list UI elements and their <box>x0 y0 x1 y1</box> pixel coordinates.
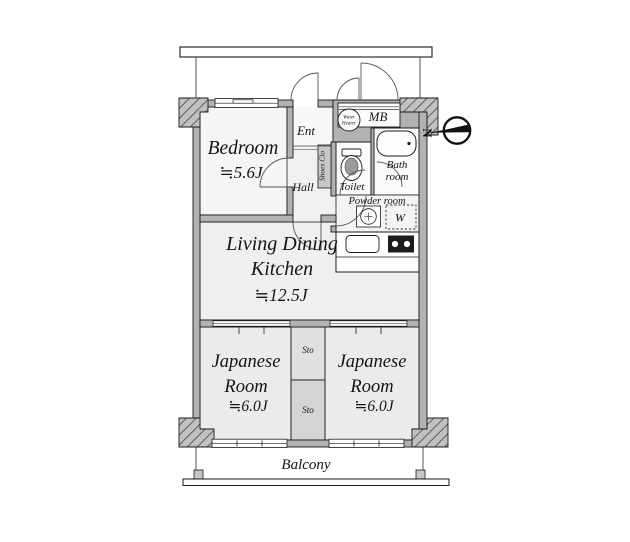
water-heater-label-1: Water <box>343 116 355 121</box>
washer-label: W <box>395 211 406 225</box>
kitchen-counter <box>336 232 419 272</box>
japanese-left-label-2: Room <box>223 377 267 397</box>
japanese-right-size: ≒6.0J <box>354 398 394 415</box>
vanity-sink-icon <box>357 206 381 227</box>
ldk-label-2: Kitchen <box>250 258 313 280</box>
bathroom-label-2: room <box>386 171 409 183</box>
bedroom-label: Bedroom <box>208 138 279 159</box>
wall-bedroom-right-upper <box>287 107 293 158</box>
floorplan-canvas: Bedroom ≒5.6J Ent Hall Shoes Clo Toilet … <box>0 0 630 542</box>
japanese-right-label-2: Room <box>349 377 393 397</box>
meter-box-door-large-arc <box>361 63 398 100</box>
stove-icon <box>388 236 414 253</box>
japanese-left-window <box>212 439 287 447</box>
wall-right <box>419 112 427 447</box>
shoes-closet-label: Shoes Clo <box>318 151 327 181</box>
water-heater-label-2: Heater <box>341 122 356 127</box>
bedroom-floor <box>200 107 287 215</box>
bathroom-label-1: Bath <box>387 159 408 171</box>
bedroom-window <box>215 99 278 108</box>
meter-box-door-small-arc <box>337 78 359 100</box>
bedroom-size: ≒5.6J <box>219 163 263 182</box>
balcony-label: Balcony <box>281 457 330 473</box>
compass-north-label: N <box>420 128 435 138</box>
wall-toilet-left <box>331 142 336 196</box>
balcony-railing <box>183 479 449 486</box>
meter-box-label: MB <box>368 109 388 124</box>
japanese-right-window <box>329 439 404 447</box>
toilet-label: Toilet <box>340 181 366 193</box>
wall-bedroom-bottom <box>200 215 293 222</box>
wall-hall-stub <box>321 215 336 222</box>
hall-label: Hall <box>291 180 314 194</box>
japanese-right-label-1: Japanese <box>338 352 407 372</box>
ldk-size: ≒12.5J <box>254 285 308 305</box>
entrance-label: Ent <box>296 123 315 138</box>
wall-top-entrance-stub <box>318 100 333 107</box>
toilet-icon <box>341 149 362 181</box>
entrance-door-arc <box>291 73 318 100</box>
floorplan-page: Bedroom ≒5.6J Ent Hall Shoes Clo Toilet … <box>0 0 630 542</box>
storage-upper-label: Sto <box>302 345 314 355</box>
corridor-bar <box>180 47 432 57</box>
storage-lower-label: Sto <box>302 405 314 415</box>
kitchen-sink-icon <box>346 236 379 253</box>
bathtub-icon <box>377 131 416 156</box>
japanese-left-label-1: Japanese <box>212 352 281 372</box>
wall-powder-left-stub <box>331 226 336 232</box>
ldk-label-1: Living Dining <box>225 233 338 255</box>
corridor <box>180 47 432 100</box>
wall-left <box>193 100 200 447</box>
powder-room-label: Powder room <box>347 196 405 207</box>
japanese-left-size: ≒6.0J <box>228 398 268 415</box>
wall-toilet-bath <box>371 128 374 195</box>
